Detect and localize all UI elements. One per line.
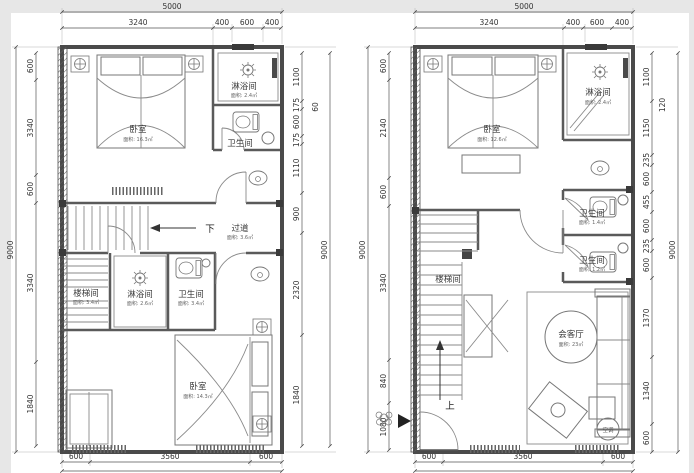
dim-label: 60 — [311, 102, 320, 112]
direction-label: 下 — [205, 224, 215, 235]
dim-label: 1840 — [26, 394, 35, 413]
dim-label: 175 — [292, 98, 301, 113]
room-area: 面积: 23㎡ — [559, 341, 584, 348]
dim-label: 5000 — [514, 2, 533, 11]
dim-label: 400 — [566, 18, 581, 27]
dim-label: 600 — [590, 18, 605, 27]
dim-label: 600 — [379, 185, 388, 200]
room-label: 淋浴间 — [127, 289, 153, 300]
room-area: 面积: 2.6㎡ — [127, 300, 153, 307]
room-label: 楼梯间 — [435, 274, 461, 285]
paper-sheet — [11, 13, 689, 473]
dim-label: 1370 — [642, 308, 651, 327]
room-label: 淋浴间 — [585, 87, 611, 98]
dim-label: 600 — [642, 258, 651, 273]
ac-label: 空调 — [602, 426, 614, 434]
room-area: 面积: 2.4㎡ — [585, 99, 611, 106]
dim-label: 9000 — [668, 240, 677, 259]
room-area: 面积: 12.6㎡ — [477, 136, 506, 143]
room-label: 会客厅 — [558, 329, 584, 340]
room-label: 淋浴间 — [231, 81, 257, 92]
room-area: 面积: 2.4㎡ — [231, 92, 257, 99]
dim-label: 1840 — [292, 385, 301, 404]
room-label: 卧室 — [189, 381, 207, 392]
dim-label: 2140 — [379, 118, 388, 137]
room-label: 卧室 — [483, 124, 501, 135]
room-area: 面积: 3.4㎡ — [73, 299, 99, 306]
dim-label: 600 — [240, 18, 255, 27]
floor-plan-drawing: 5000 3240 400 600 400 9000 600 3340 600 … — [0, 0, 694, 473]
dim-label: 840 — [379, 374, 388, 389]
room-label: 卫生间 — [227, 138, 253, 149]
direction-label: 上 — [445, 401, 455, 412]
dim-label: 400 — [265, 18, 280, 27]
room-label: 过道 — [231, 223, 249, 234]
dim-label: 600 — [26, 59, 35, 74]
window-bar — [585, 44, 607, 50]
room-area: 面积: 1.4㎡ — [579, 219, 605, 226]
dim-label: 1150 — [642, 118, 651, 137]
shower-head-icon — [592, 64, 608, 80]
dim-label: 175 — [292, 133, 301, 148]
dim-label: 400 — [615, 18, 630, 27]
dim-label: 1110 — [292, 158, 301, 177]
room-area: 面积: 3.6㎡ — [227, 234, 253, 241]
room-label: 卫生间 — [178, 289, 204, 300]
dim-label: 9000 — [6, 240, 15, 259]
dim-label: 3240 — [479, 18, 498, 27]
shower-head-icon — [132, 270, 148, 286]
dim-label: 235 — [642, 239, 651, 254]
room-label: 楼梯间 — [73, 288, 99, 299]
hatched-wall — [411, 47, 420, 452]
room-label: 卧室 — [129, 124, 147, 135]
dim-label: 455 — [642, 195, 651, 210]
dim-label: 600 — [292, 115, 301, 130]
dim-label: 5000 — [162, 2, 181, 11]
dim-label: 600 — [26, 182, 35, 197]
shower-head-icon — [240, 62, 256, 78]
room-label: 卫生间 — [579, 208, 605, 219]
floor-plan-page: 5000 3240 400 600 400 9000 600 3340 600 … — [0, 0, 694, 473]
dim-label: 900 — [292, 207, 301, 222]
dim-label: 600 — [642, 431, 651, 446]
dim-label: 600 — [642, 172, 651, 187]
room-area: 面积: 3.4㎡ — [178, 300, 204, 307]
dim-label: 3240 — [128, 18, 147, 27]
dim-label: 3340 — [26, 273, 35, 292]
dim-label: 400 — [215, 18, 230, 27]
window-bar — [232, 44, 254, 50]
dim-label: 600 — [642, 219, 651, 234]
dim-label: 9000 — [320, 240, 329, 259]
dim-label: 1100 — [642, 67, 651, 86]
dim-label: 9000 — [358, 240, 367, 259]
dim-label: 3340 — [26, 118, 35, 137]
dim-label: 1340 — [642, 381, 651, 400]
dim-label: 3340 — [379, 273, 388, 292]
room-area: 面积: 16.3㎡ — [123, 136, 152, 143]
dim-label: 2320 — [292, 280, 301, 299]
dim-label: 120 — [658, 98, 667, 113]
dim-label: 600 — [379, 59, 388, 74]
dim-label: 1100 — [292, 67, 301, 86]
room-area: 面积: 1.2㎡ — [579, 266, 605, 273]
room-area: 面积: 14.3㎡ — [183, 393, 212, 400]
dim-label: 235 — [642, 153, 651, 168]
room-label: 卫生间 — [579, 255, 605, 266]
